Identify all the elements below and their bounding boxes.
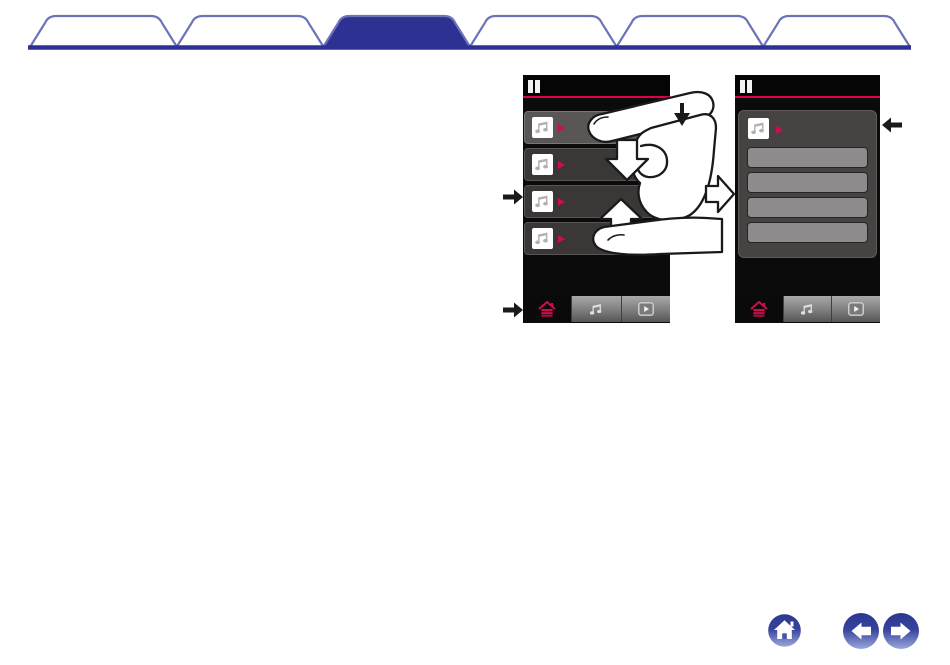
play-triangle-icon (558, 198, 565, 206)
chapter-tab-1[interactable] (30, 16, 177, 47)
pause-icon (740, 80, 753, 93)
phone-tab-bar (523, 296, 670, 322)
tab-music (571, 296, 620, 322)
phone-screen-after (735, 75, 880, 323)
list-item (524, 111, 668, 144)
phone-header (523, 75, 670, 96)
empty-row (747, 147, 868, 168)
music-note-icon (532, 154, 553, 175)
play-triangle-icon (558, 235, 565, 243)
music-note-icon (748, 118, 769, 139)
music-note-icon (532, 117, 553, 138)
play-triangle-icon (558, 124, 565, 132)
music-note-icon (532, 228, 553, 249)
phone-header (735, 75, 880, 96)
tab-play (621, 296, 670, 322)
accent-line (735, 96, 880, 98)
chapter-tab-4[interactable] (470, 16, 617, 47)
callout-arrow-list-item (503, 190, 523, 205)
tab-music (783, 296, 832, 322)
list-item (524, 185, 668, 218)
play-triangle-icon (776, 126, 783, 134)
tab-play (831, 296, 880, 322)
chapter-tab-3-active[interactable] (323, 16, 470, 47)
accent-line (523, 96, 670, 98)
pause-icon (528, 80, 541, 93)
callout-arrow-tab-bar (503, 303, 523, 318)
play-triangle-icon (558, 161, 565, 169)
manual-page (0, 0, 950, 665)
home-button[interactable] (767, 613, 802, 648)
empty-row (747, 172, 868, 193)
back-button[interactable] (842, 612, 880, 650)
forward-button[interactable] (882, 612, 920, 650)
tab-home (523, 296, 571, 322)
tap-point-down-arrow (674, 103, 690, 126)
chapter-tab-6[interactable] (763, 16, 910, 47)
chapter-tab-strip (0, 0, 950, 56)
content-list (524, 111, 668, 259)
empty-row (747, 197, 868, 218)
screen-transition-right-arrow (706, 176, 734, 212)
expanded-item-panel (738, 110, 877, 258)
phone-tab-bar (735, 296, 880, 322)
list-item (524, 148, 668, 181)
tab-home (735, 296, 783, 322)
callout-arrow-selected-item (882, 118, 902, 133)
empty-row (747, 222, 868, 243)
chapter-tab-5[interactable] (616, 16, 763, 47)
list-item (524, 222, 668, 255)
phone-screen-before (523, 75, 670, 323)
chapter-tab-2[interactable] (177, 16, 324, 47)
music-note-icon (532, 191, 553, 212)
